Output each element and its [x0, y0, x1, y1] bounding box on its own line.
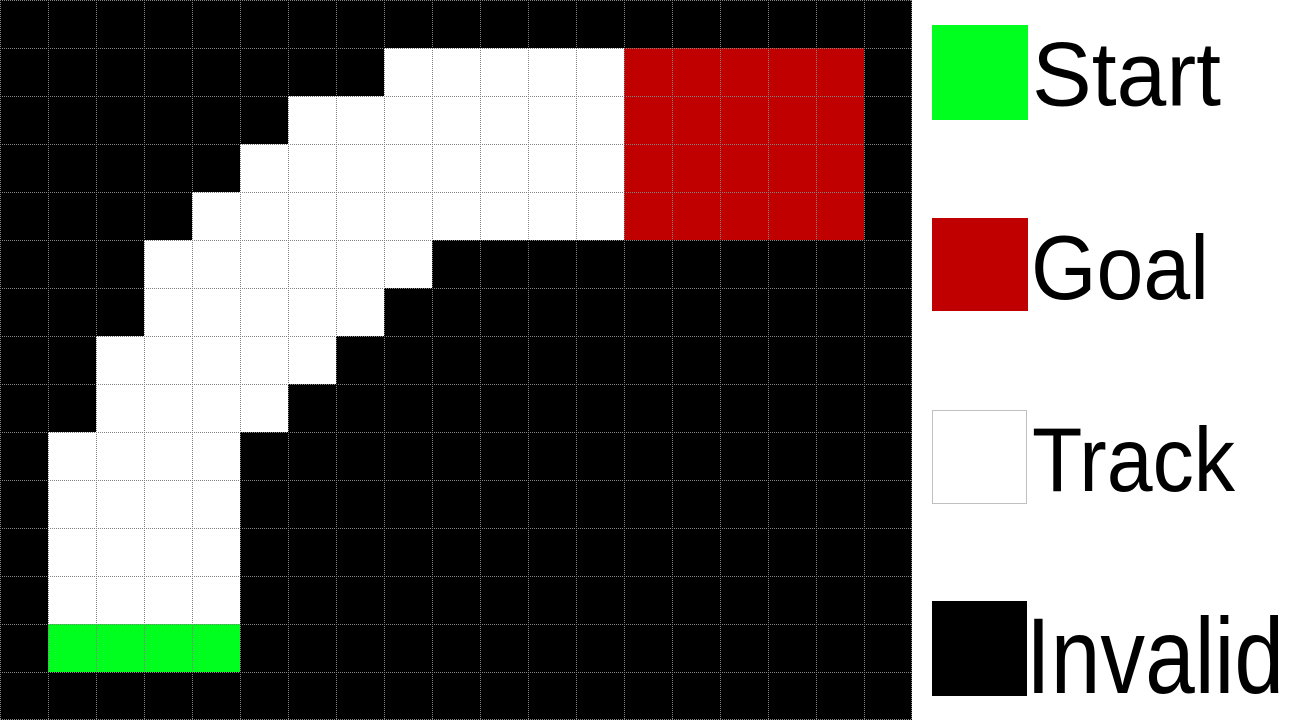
- svg-text:Start: Start: [1032, 25, 1221, 126]
- svg-text:Goal: Goal: [1031, 218, 1209, 319]
- svg-text:Invalid: Invalid: [1026, 595, 1284, 716]
- svg-text:Track: Track: [1032, 410, 1235, 511]
